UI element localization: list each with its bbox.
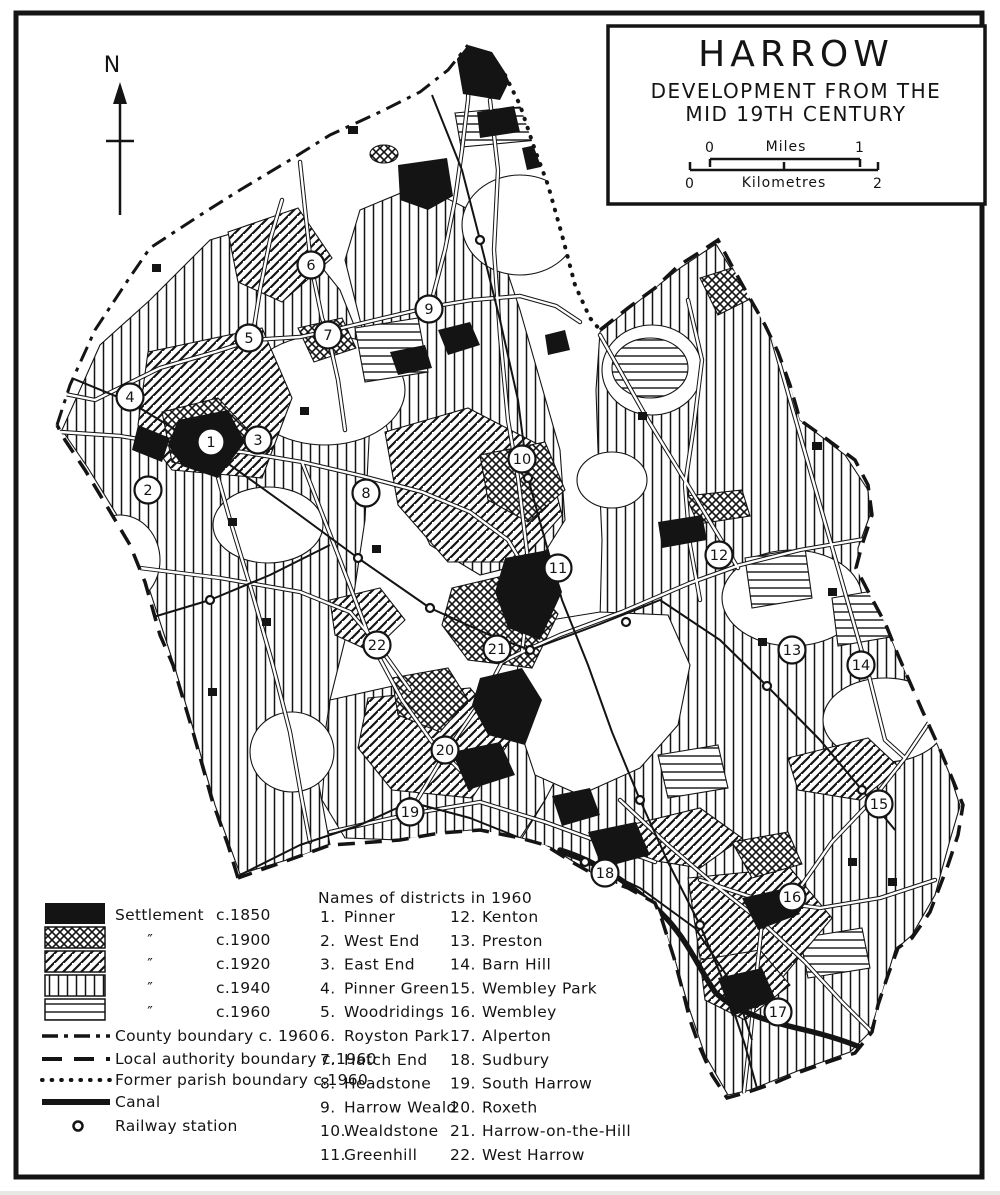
district-marker-number: 7: [323, 328, 332, 344]
district-marker-number: 22: [368, 638, 386, 654]
district-list-item: 2.West End: [320, 932, 420, 950]
district-list-item: 17.Alperton: [450, 1027, 551, 1045]
district-marker-15: 15: [866, 791, 893, 818]
railway-station-icon: [763, 682, 771, 690]
railway-station-icon: [581, 858, 589, 866]
district-list-item: 15.Wembley Park: [450, 979, 597, 997]
map-subtitle-line2: MID 19TH CENTURY: [685, 102, 906, 126]
district-marker-number: 8: [361, 486, 370, 502]
district-marker-number: 14: [852, 658, 870, 674]
district-marker-number: 18: [596, 866, 614, 882]
district-marker-4: 4: [117, 384, 144, 411]
district-list-item: 22.West Harrow: [450, 1146, 585, 1164]
legend-station-icon: [74, 1122, 83, 1131]
district-marker-number: 4: [125, 390, 134, 406]
district-list-item: 16.Wembley: [450, 1003, 557, 1021]
legend-ditto-mark: ″: [147, 955, 153, 973]
miles-unit-label: Miles: [766, 139, 807, 155]
district-list-item: 12.Kenton: [450, 908, 539, 926]
legend-label: Railway station: [115, 1117, 238, 1135]
legend-ditto-mark: ″: [147, 979, 153, 997]
legend-ditto-mark: ″: [147, 931, 153, 949]
railway-station-icon: [206, 596, 214, 604]
district-marker-number: 19: [401, 805, 419, 821]
legend-label-prefix: Settlement: [115, 906, 204, 924]
km-end-label: 2: [873, 176, 883, 192]
legend-label: c.1940: [216, 979, 271, 997]
legend-label: County boundary c. 1960: [115, 1027, 319, 1045]
district-marker-11: 11: [545, 555, 572, 582]
railway-station-icon: [524, 474, 532, 482]
legend-label: Canal: [115, 1093, 160, 1111]
map-subtitle-line1: DEVELOPMENT FROM THE: [651, 79, 942, 103]
district-marker-16: 16: [779, 884, 806, 911]
district-marker-number: 11: [549, 561, 567, 577]
district-marker-21: 21: [484, 636, 511, 663]
map-title: HARROW: [698, 34, 894, 75]
district-marker-number: 3: [253, 433, 262, 449]
legend-label: Local authority boundary c.1960: [115, 1050, 377, 1068]
railway-station-icon: [354, 554, 362, 562]
district-marker-number: 15: [870, 797, 888, 813]
district-marker-2: 2: [135, 477, 162, 504]
district-marker-6: 6: [298, 252, 325, 279]
district-marker-number: 20: [436, 743, 454, 759]
legend-swatch-1850: [45, 903, 105, 924]
railway-station-icon: [426, 604, 434, 612]
settlement-1960-area: [612, 338, 688, 398]
km-unit-label: Kilometres: [742, 175, 827, 191]
district-marker-7: 7: [315, 322, 342, 349]
district-marker-1: 1: [198, 429, 225, 456]
railway-station-icon: [858, 786, 866, 794]
district-marker-number: 2: [143, 483, 152, 499]
district-marker-13: 13: [779, 637, 806, 664]
railway-station-icon: [636, 796, 644, 804]
harrow-development-map: 12345678910111213141516171819202122 N HA…: [0, 0, 1000, 1191]
title-box: HARROW DEVELOPMENT FROM THE MID 19TH CEN…: [608, 26, 985, 204]
legend-label: c.1920: [216, 955, 271, 973]
legend-label: c.1900: [216, 931, 271, 949]
district-marker-number: 16: [783, 890, 801, 906]
district-marker-9: 9: [416, 296, 443, 323]
railway-station-icon: [476, 236, 484, 244]
district-marker-10: 10: [509, 446, 536, 473]
district-list-item: 11.Greenhill: [320, 1146, 417, 1164]
district-list-item: 1.Pinner: [320, 908, 395, 926]
miles-start-label: 0: [705, 140, 715, 156]
legend-swatch-1960: [45, 999, 105, 1020]
district-marker-18: 18: [592, 860, 619, 887]
district-list-item: 3.East End: [320, 956, 415, 974]
railway-station-icon: [526, 646, 534, 654]
district-marker-17: 17: [765, 999, 792, 1026]
district-marker-number: 6: [306, 258, 315, 274]
map-page: 12345678910111213141516171819202122 N HA…: [0, 0, 1000, 1191]
district-marker-22: 22: [364, 632, 391, 659]
district-marker-number: 10: [513, 452, 531, 468]
north-label: N: [104, 53, 120, 78]
district-list-item: 20.Roxeth: [450, 1098, 538, 1116]
district-list-item: 14.Barn Hill: [450, 956, 551, 974]
railway-station-icon: [696, 921, 704, 929]
district-list-item: 13.Preston: [450, 932, 543, 950]
district-marker-3: 3: [245, 427, 272, 454]
km-start-label: 0: [685, 176, 695, 192]
district-list-item: 19.South Harrow: [450, 1075, 592, 1093]
district-marker-number: 12: [710, 548, 728, 564]
district-marker-number: 17: [769, 1005, 787, 1021]
district-list-heading: Names of districts in 1960: [318, 889, 532, 907]
district-marker-number: 9: [424, 302, 433, 318]
legend-ditto-mark: ″: [147, 1003, 153, 1021]
legend-swatch-1900: [45, 927, 105, 948]
legend-swatch-1940: [45, 975, 105, 996]
district-marker-number: 5: [244, 331, 253, 347]
settlement-1900-area: [370, 145, 398, 163]
district-marker-number: 21: [488, 642, 506, 658]
settlement-1960-area: [658, 745, 728, 798]
district-marker-14: 14: [848, 652, 875, 679]
district-marker-12: 12: [706, 542, 733, 569]
district-list-item: 18.Sudbury: [450, 1051, 550, 1069]
district-marker-20: 20: [432, 737, 459, 764]
miles-end-label: 1: [855, 140, 865, 156]
legend-swatch-1920: [45, 951, 105, 972]
legend-label: c.1850: [216, 906, 271, 924]
district-marker-number: 1: [206, 435, 215, 451]
railway-station-icon: [622, 618, 630, 626]
district-marker-19: 19: [397, 799, 424, 826]
district-marker-8: 8: [353, 480, 380, 507]
district-marker-number: 13: [783, 643, 801, 659]
open-space: [577, 452, 647, 508]
district-list-item: 10.Wealdstone: [320, 1122, 439, 1140]
legend-label: c.1960: [216, 1003, 271, 1021]
district-marker-5: 5: [236, 325, 263, 352]
